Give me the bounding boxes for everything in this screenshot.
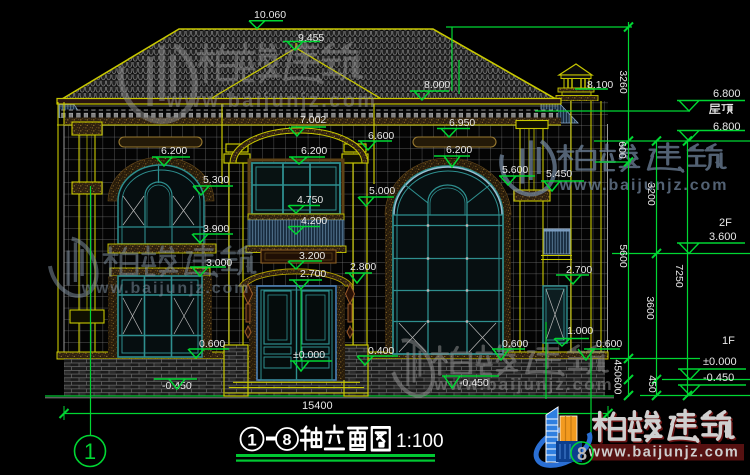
svg-text:1: 1 xyxy=(247,431,256,450)
svg-text:6.200: 6.200 xyxy=(301,145,327,157)
svg-text:15400: 15400 xyxy=(302,400,333,412)
svg-text:www.baijunjz.com: www.baijunjz.com xyxy=(559,177,729,194)
svg-text:5.000: 5.000 xyxy=(369,185,395,197)
svg-text:600: 600 xyxy=(616,141,628,159)
svg-text:3.600: 3.600 xyxy=(709,231,737,243)
svg-text:3200: 3200 xyxy=(645,182,657,206)
svg-text:7250: 7250 xyxy=(673,264,685,288)
svg-text:4.200: 4.200 xyxy=(301,215,327,227)
svg-text:10.060: 10.060 xyxy=(254,9,286,21)
svg-text:450600: 450600 xyxy=(612,359,624,394)
svg-text:5.600: 5.600 xyxy=(502,164,528,176)
svg-text:6.200: 6.200 xyxy=(161,145,187,157)
svg-text:-0.450: -0.450 xyxy=(703,372,734,384)
svg-text:1:100: 1:100 xyxy=(396,431,444,452)
svg-text:4.750: 4.750 xyxy=(297,194,323,206)
svg-text:3.900: 3.900 xyxy=(203,223,229,235)
svg-text:5.450: 5.450 xyxy=(546,168,572,180)
svg-text:0.600: 0.600 xyxy=(596,338,622,350)
svg-text:0.600: 0.600 xyxy=(502,338,528,350)
svg-text:±0.000: ±0.000 xyxy=(293,349,325,361)
svg-text:0.600: 0.600 xyxy=(199,338,225,350)
svg-text:2.800: 2.800 xyxy=(350,261,376,273)
svg-text:www.baijunjz.com: www.baijunjz.com xyxy=(165,90,377,112)
svg-text:7.002: 7.002 xyxy=(300,114,326,126)
svg-text:-0.450: -0.450 xyxy=(162,380,192,392)
svg-text:1.000: 1.000 xyxy=(567,325,593,337)
svg-text:6.800: 6.800 xyxy=(713,88,741,100)
svg-text:www.baijunjz.com: www.baijunjz.com xyxy=(81,280,251,297)
svg-text:-0.450: -0.450 xyxy=(459,377,489,389)
svg-text:6.800: 6.800 xyxy=(713,121,741,133)
svg-text:3260: 3260 xyxy=(617,70,629,94)
svg-text:2.700: 2.700 xyxy=(300,268,326,280)
svg-text:5600: 5600 xyxy=(617,244,629,268)
svg-text:8.000: 8.000 xyxy=(424,79,450,91)
svg-text:2.700: 2.700 xyxy=(566,264,592,276)
svg-text:3.200: 3.200 xyxy=(299,250,325,262)
svg-text:±0.000: ±0.000 xyxy=(703,356,737,368)
svg-text:3600: 3600 xyxy=(644,296,656,320)
svg-text:6.950: 6.950 xyxy=(449,117,475,129)
svg-text:6.200: 6.200 xyxy=(446,144,472,156)
svg-text:8: 8 xyxy=(283,432,292,449)
svg-text:8: 8 xyxy=(577,444,587,464)
svg-text:1: 1 xyxy=(84,439,96,464)
svg-text:www.baijunjz.com: www.baijunjz.com xyxy=(588,445,740,461)
svg-text:0.400: 0.400 xyxy=(368,345,394,357)
svg-text:450: 450 xyxy=(646,375,658,393)
svg-text:1F: 1F xyxy=(722,335,735,347)
svg-text:5.300: 5.300 xyxy=(203,174,229,186)
svg-text:6.600: 6.600 xyxy=(368,130,394,142)
svg-text:2F: 2F xyxy=(719,217,732,229)
